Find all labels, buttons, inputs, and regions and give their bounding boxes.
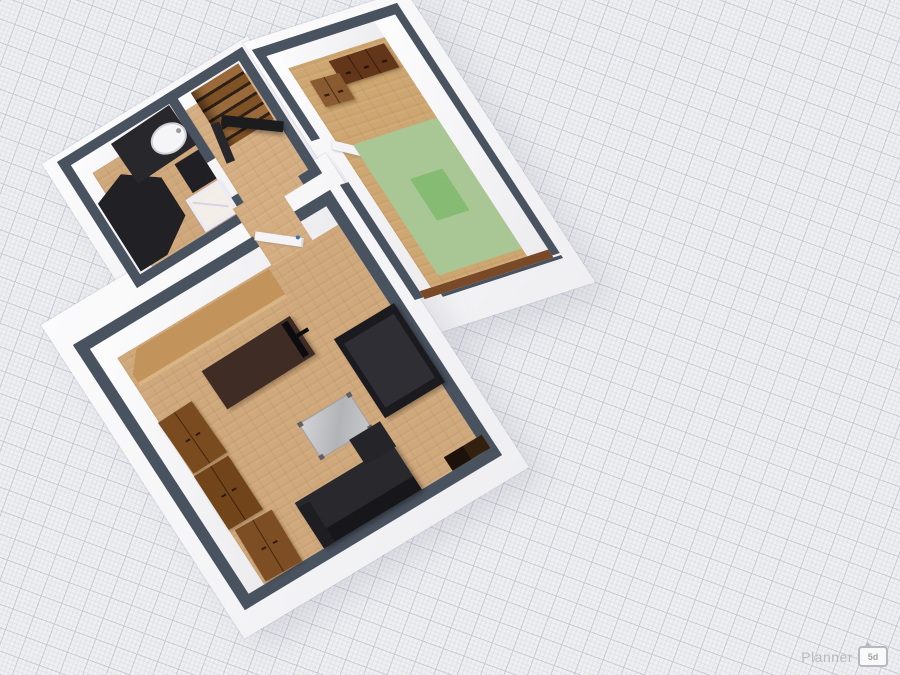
door-handle-icon [296, 235, 301, 239]
watermark-badge-text: 5d [868, 652, 879, 662]
rack-bar-icon [193, 202, 229, 208]
rug-center-square [410, 169, 470, 221]
planner5d-3d-canvas[interactable]: Planner 5d [0, 0, 900, 675]
faucet-icon [175, 127, 182, 134]
watermark-brand-text: Planner [801, 649, 853, 665]
planner5d-watermark: Planner 5d [801, 646, 888, 667]
planner5d-logo-badge: 5d [858, 646, 888, 667]
